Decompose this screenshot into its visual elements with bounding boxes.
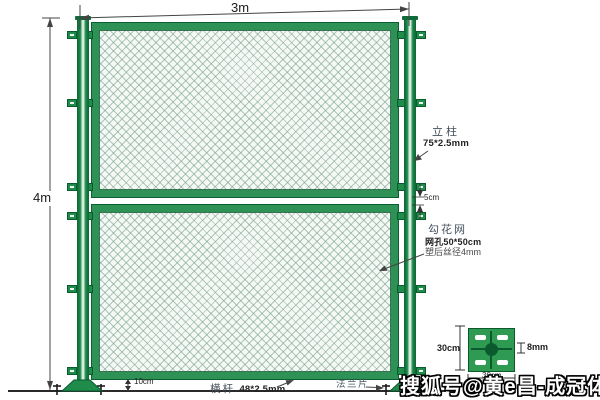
lower-mesh-panel [92, 205, 398, 379]
plate-slot [497, 360, 508, 365]
watermark: 搜狐号@黄e昌-成冠体育 [400, 370, 600, 399]
post-callout: 立柱 75*2.5mm [423, 126, 469, 150]
post-bracket [67, 99, 77, 107]
rail-callout-title: 横杆 [210, 383, 235, 395]
plate-thickness-label: 8mm [527, 342, 548, 352]
left-post [77, 19, 89, 382]
post-bracket [416, 183, 426, 191]
flange-plate-detail [468, 328, 515, 372]
width-dimension-label: 3m [231, 1, 249, 16]
plate-slot [497, 335, 508, 340]
mesh-callout-spec-wire: 塑后丝径4mm [425, 247, 481, 257]
panel-gap-label: 5cm [424, 193, 439, 202]
ground-clearance-label: 10cm [134, 377, 154, 386]
post-bracket [67, 367, 77, 375]
right-post-cap [402, 16, 418, 20]
post-bracket [416, 31, 426, 39]
post-callout-spec: 75*2.5mm [423, 139, 469, 150]
mesh-hook-edge [99, 30, 391, 190]
post-callout-title: 立柱 [423, 126, 469, 139]
post-bracket [67, 285, 77, 293]
rail-callout-spec: 48*2.5mm [239, 384, 285, 395]
ground-clearance-dimension [125, 379, 131, 391]
post-bracket [416, 212, 426, 220]
post-bracket [67, 183, 77, 191]
fence-diagram: 3m 4m 5cm 10cm 立柱 75*2.5mm 勾花网 网孔50*50cm… [0, 0, 600, 400]
flange-callout: 法兰片 [336, 380, 369, 391]
plate-slot [475, 335, 486, 340]
left-post-cap [75, 16, 91, 20]
mesh-callout-spec-opening: 网孔50*50cm [425, 237, 481, 247]
plate-height-label: 30cm [437, 343, 460, 353]
post-leader-arrow [414, 151, 428, 161]
rail-callout: 横杆 48*2.5mm [210, 379, 285, 397]
mesh-callout: 勾花网 网孔50*50cm 塑后丝径4mm [425, 224, 481, 257]
right-post [404, 19, 416, 382]
plate-slot [475, 360, 486, 365]
plate-thickness-dimension [517, 343, 525, 353]
mesh-hook-edge [99, 212, 391, 372]
post-bracket [416, 99, 426, 107]
upper-mesh-panel [92, 23, 398, 197]
post-bracket [67, 212, 77, 220]
height-dimension-label: 4m [30, 191, 54, 206]
post-bracket [416, 285, 426, 293]
post-bracket [67, 31, 77, 39]
plate-center-hub [485, 343, 498, 356]
mesh-callout-title: 勾花网 [425, 224, 481, 237]
